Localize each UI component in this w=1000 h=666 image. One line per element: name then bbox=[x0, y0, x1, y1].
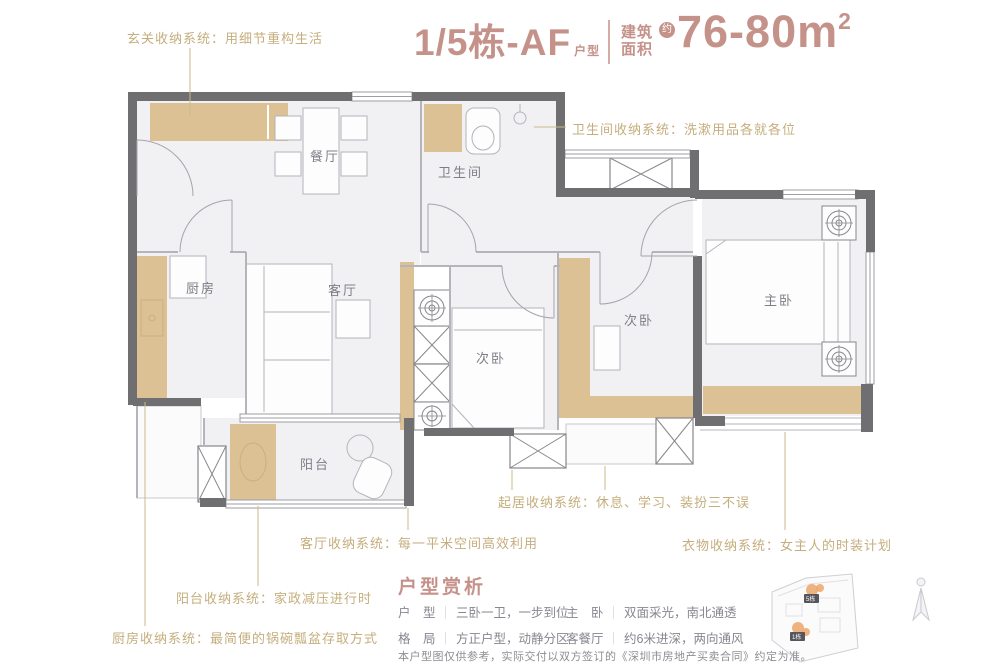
compass-icon bbox=[913, 578, 929, 620]
analysis-item-livingdining: 客餐厅｜约6米进深，两向通风 bbox=[566, 628, 743, 647]
room-label-kitchen: 厨房 bbox=[186, 278, 216, 297]
analysis-item-pattern: 格 局｜方正户型，动静分区 bbox=[398, 628, 569, 647]
keyplan-building-bottom-label: 1栋 bbox=[792, 633, 801, 641]
coffee-table bbox=[336, 300, 370, 338]
nightstand bbox=[822, 342, 856, 376]
bed-mid bbox=[452, 308, 544, 428]
room-label-balcony: 阳台 bbox=[300, 454, 330, 473]
floorplan-page: 1/5栋-AF户型 建筑 面积 约 76-80m2 玄关收纳系统：用细节重构生活… bbox=[0, 0, 1000, 666]
room-label-bathroom: 卫生间 bbox=[438, 162, 483, 181]
analysis-heading: 户型赏析 bbox=[398, 572, 486, 599]
desk bbox=[594, 326, 620, 370]
room-label-living: 客厅 bbox=[328, 280, 358, 299]
floor-plan-canvas: 5栋 1栋 bbox=[0, 0, 1000, 666]
nightstand bbox=[822, 206, 856, 240]
sofa bbox=[246, 264, 332, 414]
keyplan-building-top-label: 5栋 bbox=[806, 595, 815, 603]
room-label-dining: 餐厅 bbox=[310, 146, 340, 165]
room-label-bedroom-mid: 次卧 bbox=[476, 348, 506, 367]
analysis-item-layout: 户 型｜三卧一卫，一步到位 bbox=[398, 602, 569, 621]
room-label-master: 主卧 bbox=[764, 290, 794, 309]
room-label-bedroom-right: 次卧 bbox=[624, 310, 654, 329]
analysis-item-master: 主 卧｜双面采光，南北通透 bbox=[566, 602, 737, 621]
toilet bbox=[466, 108, 500, 154]
disclaimer: 本户型图仅供参考，实际交付以双方签订的《深圳市房地产买卖合同》约定为准。 bbox=[398, 648, 812, 664]
